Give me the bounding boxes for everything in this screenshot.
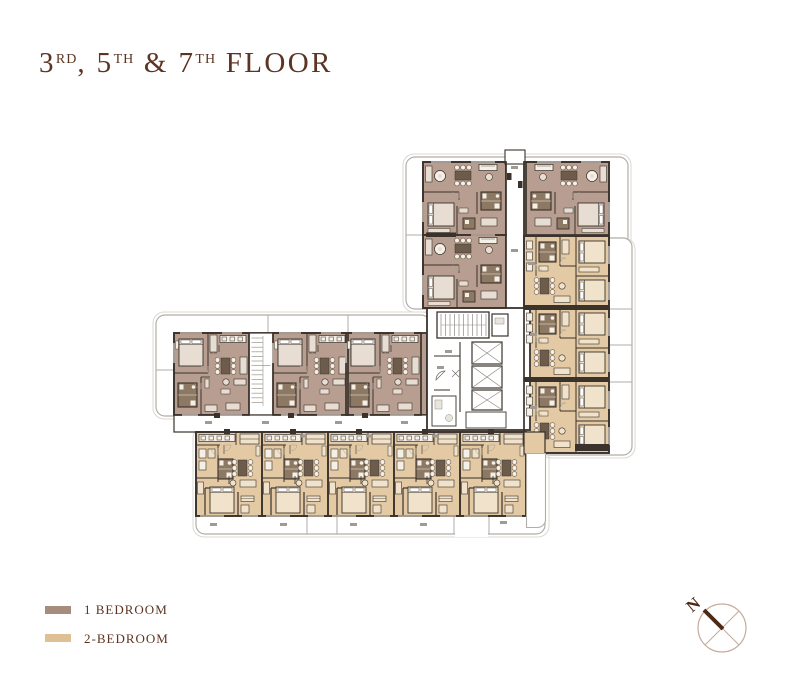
svg-text:3RD, 5TH & 7TH FLOOR: 3RD, 5TH & 7TH FLOOR — [39, 47, 333, 79]
svg-text:1 BEDROOM: 1 BEDROOM — [84, 602, 168, 617]
svg-text:N: N — [682, 593, 704, 616]
svg-text:2-BEDROOM: 2-BEDROOM — [84, 631, 169, 646]
